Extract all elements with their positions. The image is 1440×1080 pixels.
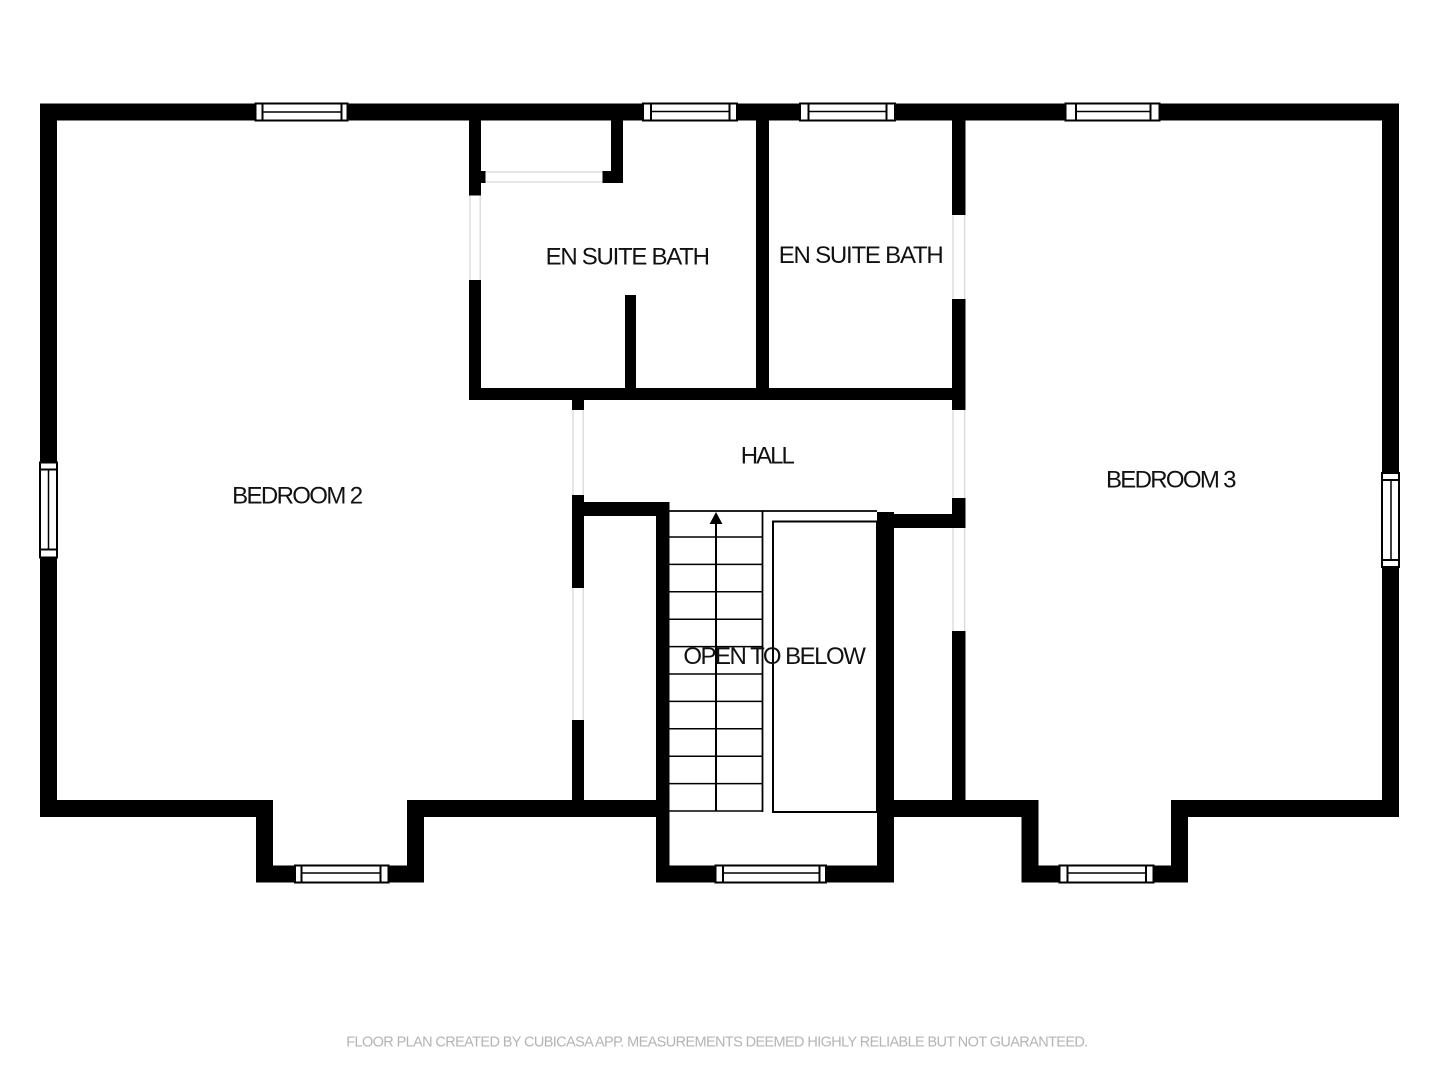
svg-text:BEDROOM 2: BEDROOM 2 xyxy=(232,482,363,509)
svg-text:HALL: HALL xyxy=(741,443,795,470)
svg-text:OPEN TO BELOW: OPEN TO BELOW xyxy=(683,643,866,670)
svg-text:EN SUITE BATH: EN SUITE BATH xyxy=(779,242,944,269)
svg-text:FLOOR PLAN CREATED BY CUBICASA: FLOOR PLAN CREATED BY CUBICASA APP. MEAS… xyxy=(346,1035,1088,1051)
svg-text:EN SUITE BATH: EN SUITE BATH xyxy=(546,243,710,270)
svg-text:BEDROOM 3: BEDROOM 3 xyxy=(1106,467,1237,494)
